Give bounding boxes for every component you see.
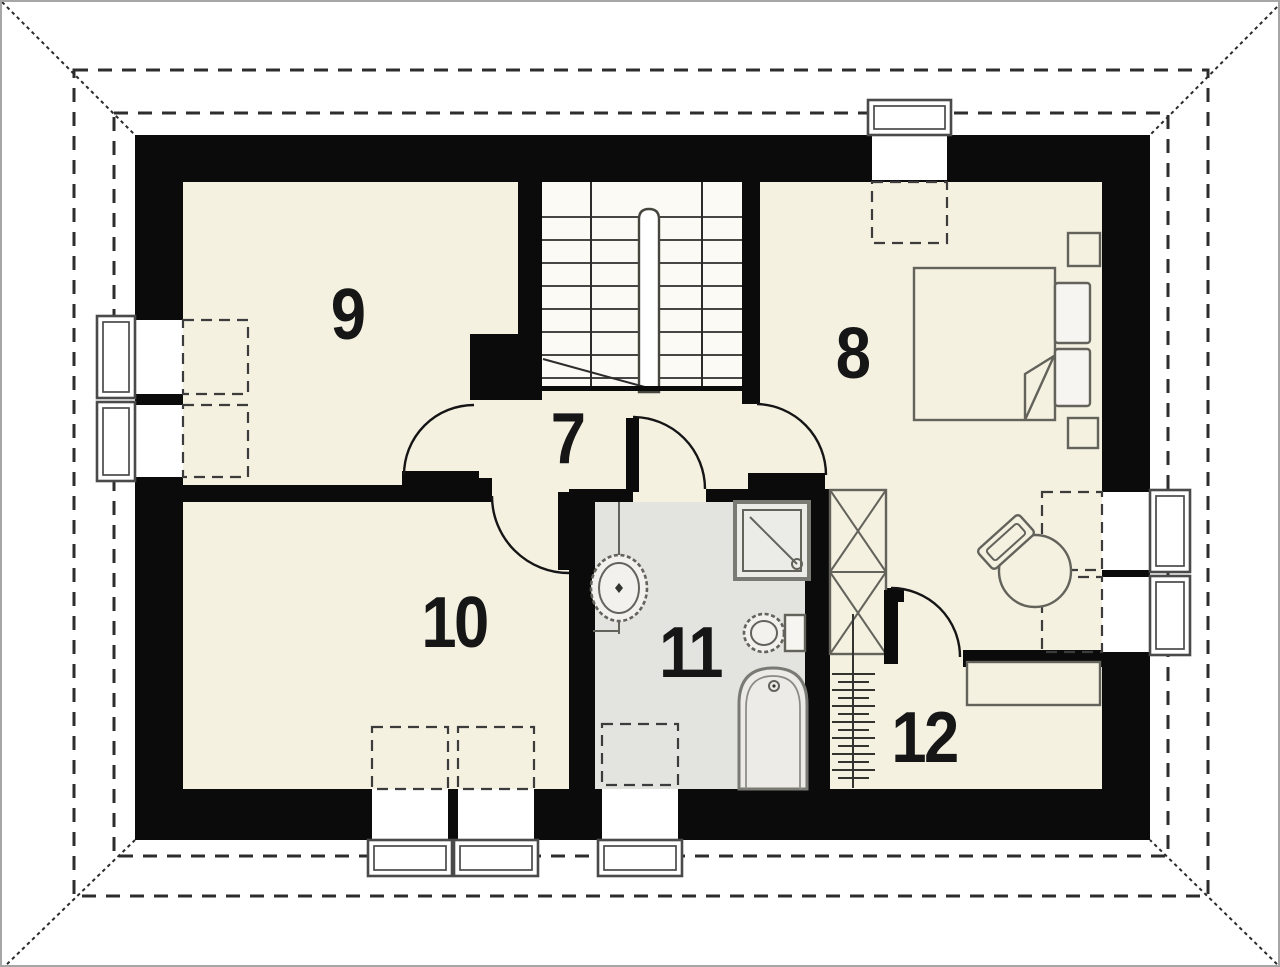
wardrobe-x	[830, 490, 886, 654]
stair-handrail	[639, 209, 659, 392]
room-label-8: 8	[836, 318, 869, 390]
window-frame	[868, 100, 951, 135]
pillow	[1055, 283, 1090, 343]
room-label-12: 12	[891, 702, 956, 774]
bathtub	[739, 668, 807, 789]
nightstand	[1068, 418, 1098, 448]
window-frame	[1150, 576, 1190, 655]
room-label-9: 9	[331, 279, 364, 351]
room-label-7: 7	[551, 403, 584, 475]
floor-plan: 7 8 9 10 11 12	[0, 0, 1280, 967]
toilet	[744, 614, 805, 652]
room-label-10: 10	[421, 587, 486, 659]
pillow	[1055, 349, 1090, 406]
nightstand	[1068, 233, 1100, 266]
room-label-11: 11	[659, 617, 721, 689]
floor-plan-drawing	[2, 2, 1280, 967]
window-frame	[598, 840, 682, 876]
window-frame	[368, 840, 452, 876]
shower-cabin	[735, 502, 809, 579]
window-frame	[97, 316, 135, 398]
bed	[914, 268, 1090, 420]
window-frame	[454, 840, 538, 876]
window-frame	[97, 402, 135, 481]
window-frame	[1150, 490, 1190, 572]
desk-counter	[967, 662, 1100, 705]
